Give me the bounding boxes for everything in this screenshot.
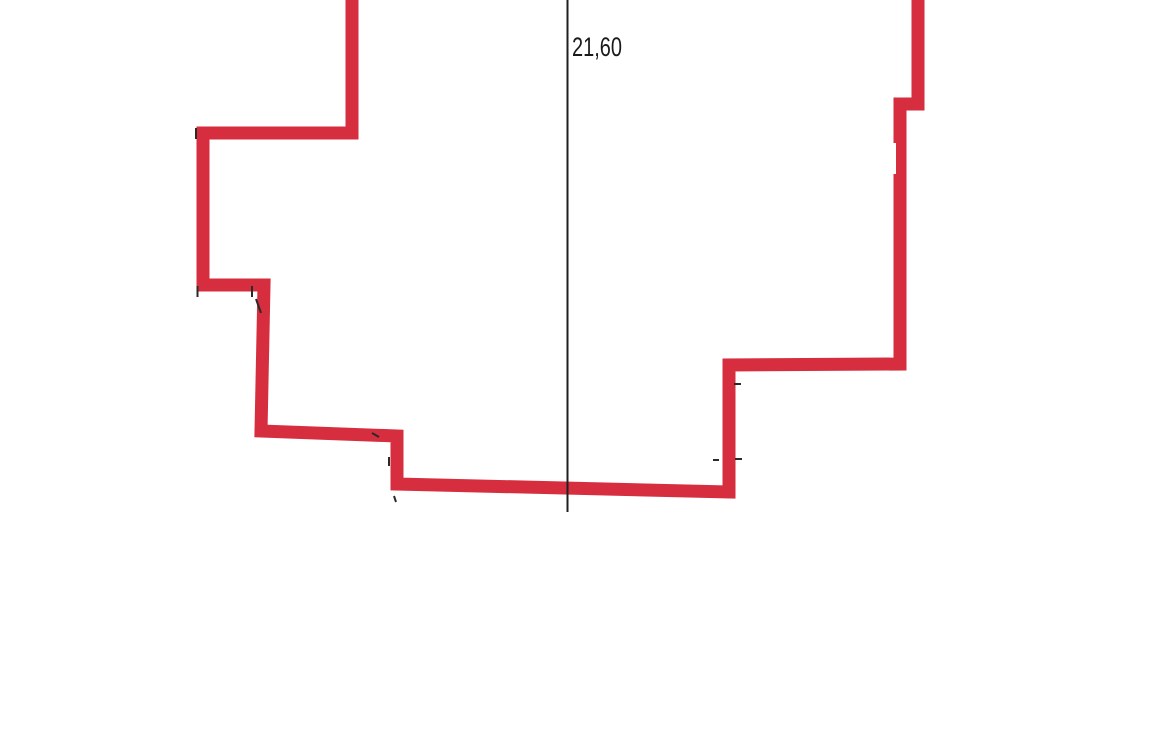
eraser-mark — [889, 143, 896, 174]
site-plan-drawing: 21,60 — [0, 0, 1170, 738]
dimension-label: 21,60 — [572, 32, 622, 62]
drawing-canvas: 21,60 — [0, 0, 1170, 738]
plot-outline — [203, 0, 918, 492]
tick-marks — [196, 128, 742, 502]
tick-mark — [394, 496, 396, 502]
